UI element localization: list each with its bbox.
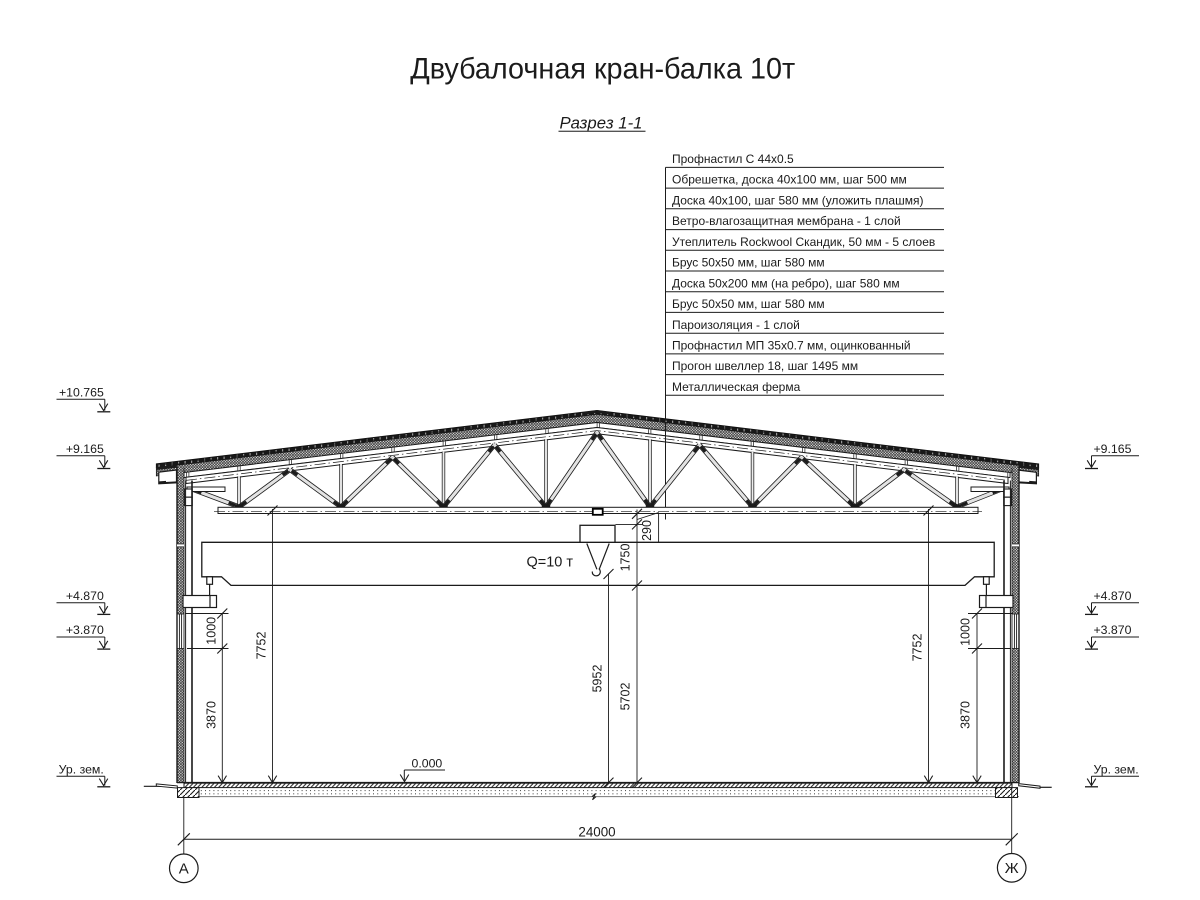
svg-text:Брус 50х50 мм, шаг 580 мм: Брус 50х50 мм, шаг 580 мм — [672, 297, 825, 311]
svg-text:Разрез 1-1: Разрез 1-1 — [560, 113, 643, 132]
svg-text:Брус 50х50 мм, шаг 580 мм: Брус 50х50 мм, шаг 580 мм — [672, 256, 825, 270]
svg-text:+10.765: +10.765 — [59, 386, 104, 400]
svg-text:3870: 3870 — [205, 701, 219, 729]
svg-text:24000: 24000 — [578, 824, 615, 839]
svg-text:1000: 1000 — [205, 617, 219, 645]
svg-text:Ур. зем.: Ур. зем. — [59, 763, 104, 777]
svg-text:Профнастил МП 35х0.7 мм, оцинк: Профнастил МП 35х0.7 мм, оцинкованный — [672, 339, 911, 353]
svg-text:Ур. зем.: Ур. зем. — [1094, 763, 1139, 777]
svg-text:+4.870: +4.870 — [1094, 589, 1132, 603]
svg-text:Доска 50х200 мм (на ребро), ша: Доска 50х200 мм (на ребро), шаг 580 мм — [672, 276, 900, 290]
svg-text:+3.870: +3.870 — [1094, 623, 1132, 637]
svg-text:Прогон швеллер 18, шаг 1495 мм: Прогон швеллер 18, шаг 1495 мм — [672, 359, 858, 373]
svg-text:5702: 5702 — [619, 683, 633, 711]
svg-text:Обрешетка, доска 40х100 мм, ша: Обрешетка, доска 40х100 мм, шаг 500 мм — [672, 173, 907, 187]
svg-text:3870: 3870 — [959, 701, 973, 729]
svg-text:+9.165: +9.165 — [1094, 442, 1132, 456]
svg-text:А: А — [179, 860, 189, 877]
svg-text:7752: 7752 — [911, 634, 925, 662]
svg-text:Доска 40х100, шаг 580 мм (улож: Доска 40х100, шаг 580 мм (уложить плашмя… — [672, 193, 923, 207]
svg-text:290: 290 — [640, 520, 654, 541]
svg-text:Ветро-влагозащитная мембрана -: Ветро-влагозащитная мембрана - 1 слой — [672, 214, 901, 228]
svg-text:+4.870: +4.870 — [66, 589, 104, 603]
svg-text:0.000: 0.000 — [412, 757, 443, 771]
svg-text:5952: 5952 — [591, 665, 605, 693]
svg-text:Металлическая ферма: Металлическая ферма — [672, 380, 801, 394]
svg-text:Q=10 т: Q=10 т — [527, 555, 574, 571]
svg-text:Утеплитель Rockwool Скандик, 5: Утеплитель Rockwool Скандик, 50 мм - 5 с… — [672, 235, 935, 249]
svg-text:+9.165: +9.165 — [66, 442, 104, 456]
svg-text:Двубалочная кран-балка 10т: Двубалочная кран-балка 10т — [410, 53, 795, 86]
svg-text:Пароизоляция - 1 слой: Пароизоляция - 1 слой — [672, 318, 800, 332]
svg-text:Профнастил С 44х0.5: Профнастил С 44х0.5 — [672, 152, 794, 166]
svg-text:7752: 7752 — [255, 632, 269, 660]
svg-text:+3.870: +3.870 — [66, 623, 104, 637]
svg-text:1750: 1750 — [618, 544, 632, 572]
svg-text:Ж: Ж — [1005, 860, 1019, 877]
svg-text:1000: 1000 — [959, 618, 973, 646]
